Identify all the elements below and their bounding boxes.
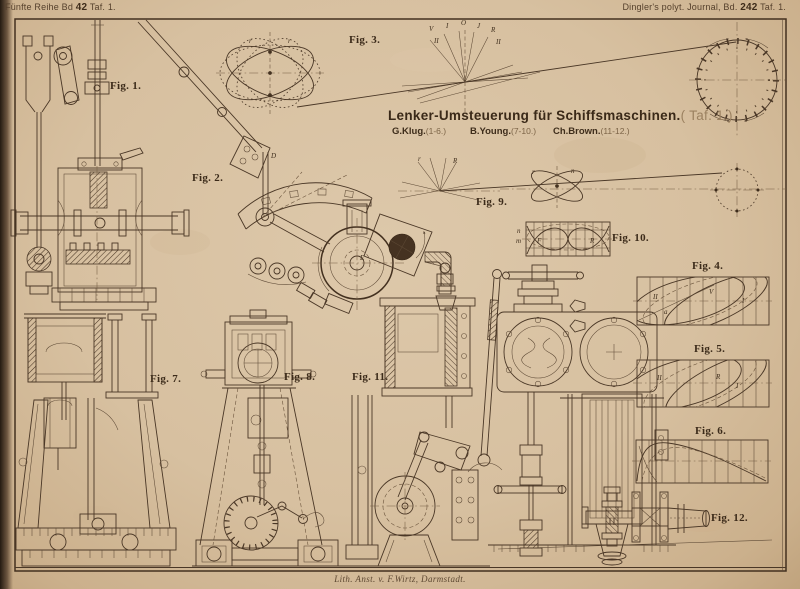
fig7-drawing <box>16 314 176 566</box>
plate-title: Lenker-Umsteuerung für Schiffsmaschinen.… <box>388 108 733 123</box>
fig3-letter: r <box>249 37 252 45</box>
fig5-label: Fig. 5. <box>694 343 725 355</box>
svg-text:r: r <box>532 168 535 176</box>
fig11-left-column <box>346 395 378 559</box>
svg-text:n: n <box>517 227 521 235</box>
page-gutter-shadow <box>0 0 13 589</box>
fig3-letter: r <box>288 37 291 45</box>
svg-text:R: R <box>589 237 595 245</box>
svg-text:II: II <box>495 38 501 46</box>
svg-text:r: r <box>418 155 421 163</box>
svg-text:R: R <box>715 373 721 381</box>
fig10-drawing: F R n m <box>516 222 612 256</box>
fig3-label: Fig. 3. <box>349 34 380 46</box>
fig8-label: Fig. 8. <box>284 371 315 383</box>
fig11-side-view <box>340 263 490 566</box>
fig2-letter-d: D <box>270 152 276 160</box>
fig11-label: Fig. 11. <box>352 371 388 383</box>
svg-text:R: R <box>452 157 458 165</box>
svg-text:I: I <box>741 297 745 305</box>
svg-text:II: II <box>433 37 439 45</box>
author-young: B.Young.(7-10.) <box>470 126 536 137</box>
fig7-label: Fig. 7. <box>150 373 181 385</box>
svg-text:J: J <box>477 22 481 30</box>
svg-text:a: a <box>664 308 668 316</box>
svg-text:m: m <box>516 237 521 245</box>
plate-frame <box>15 19 786 571</box>
fig8-drawing <box>192 310 342 566</box>
fig1-label: Fig. 1. <box>110 80 141 92</box>
fig12-label: Fig. 12. <box>711 512 748 524</box>
fig9-label: Fig. 9. <box>476 196 507 208</box>
header-journal: Dingler's polyt. Journal, Bd. 242 Taf. 1… <box>622 2 786 13</box>
svg-text:O: O <box>461 19 466 27</box>
svg-text:R: R <box>490 26 496 34</box>
plate-ref: ( Taf. 1.) <box>681 108 733 123</box>
svg-text:F: F <box>536 237 542 245</box>
fig9-circle <box>710 163 764 217</box>
main-construction-line <box>297 42 736 107</box>
fig2-letter-e: E <box>359 254 365 262</box>
lithographer-caption: Lith. Anst. v. F.Wirtz, Darmstadt. <box>290 574 510 584</box>
svg-text:V: V <box>709 288 714 296</box>
header-series: Fünfte Reihe Bd 42 Taf. 1. <box>5 2 116 13</box>
svg-text:n: n <box>571 167 575 175</box>
svg-text:I: I <box>445 22 449 30</box>
fig1-drawing <box>11 20 189 310</box>
fig10-label: Fig. 10. <box>612 232 649 244</box>
fig4-drawing: II V I a <box>627 263 775 343</box>
fig6-drawing <box>632 440 771 483</box>
plate-scan: D E r r V I O J R II II <box>0 0 800 589</box>
fig9-bowtie: r n <box>527 165 586 208</box>
fig6-label: Fig. 6. <box>695 425 726 437</box>
fig4-label: Fig. 4. <box>692 260 723 272</box>
svg-text:V: V <box>429 25 434 33</box>
fig3-loops: r r <box>216 26 324 120</box>
fig11-drawing <box>340 263 676 566</box>
author-klug: G.Klug.(1-6.) <box>392 126 446 137</box>
svg-text:II: II <box>652 293 658 301</box>
fig2-label: Fig. 2. <box>192 172 223 184</box>
author-brown: Ch.Brown.(11-12.) <box>553 126 630 137</box>
